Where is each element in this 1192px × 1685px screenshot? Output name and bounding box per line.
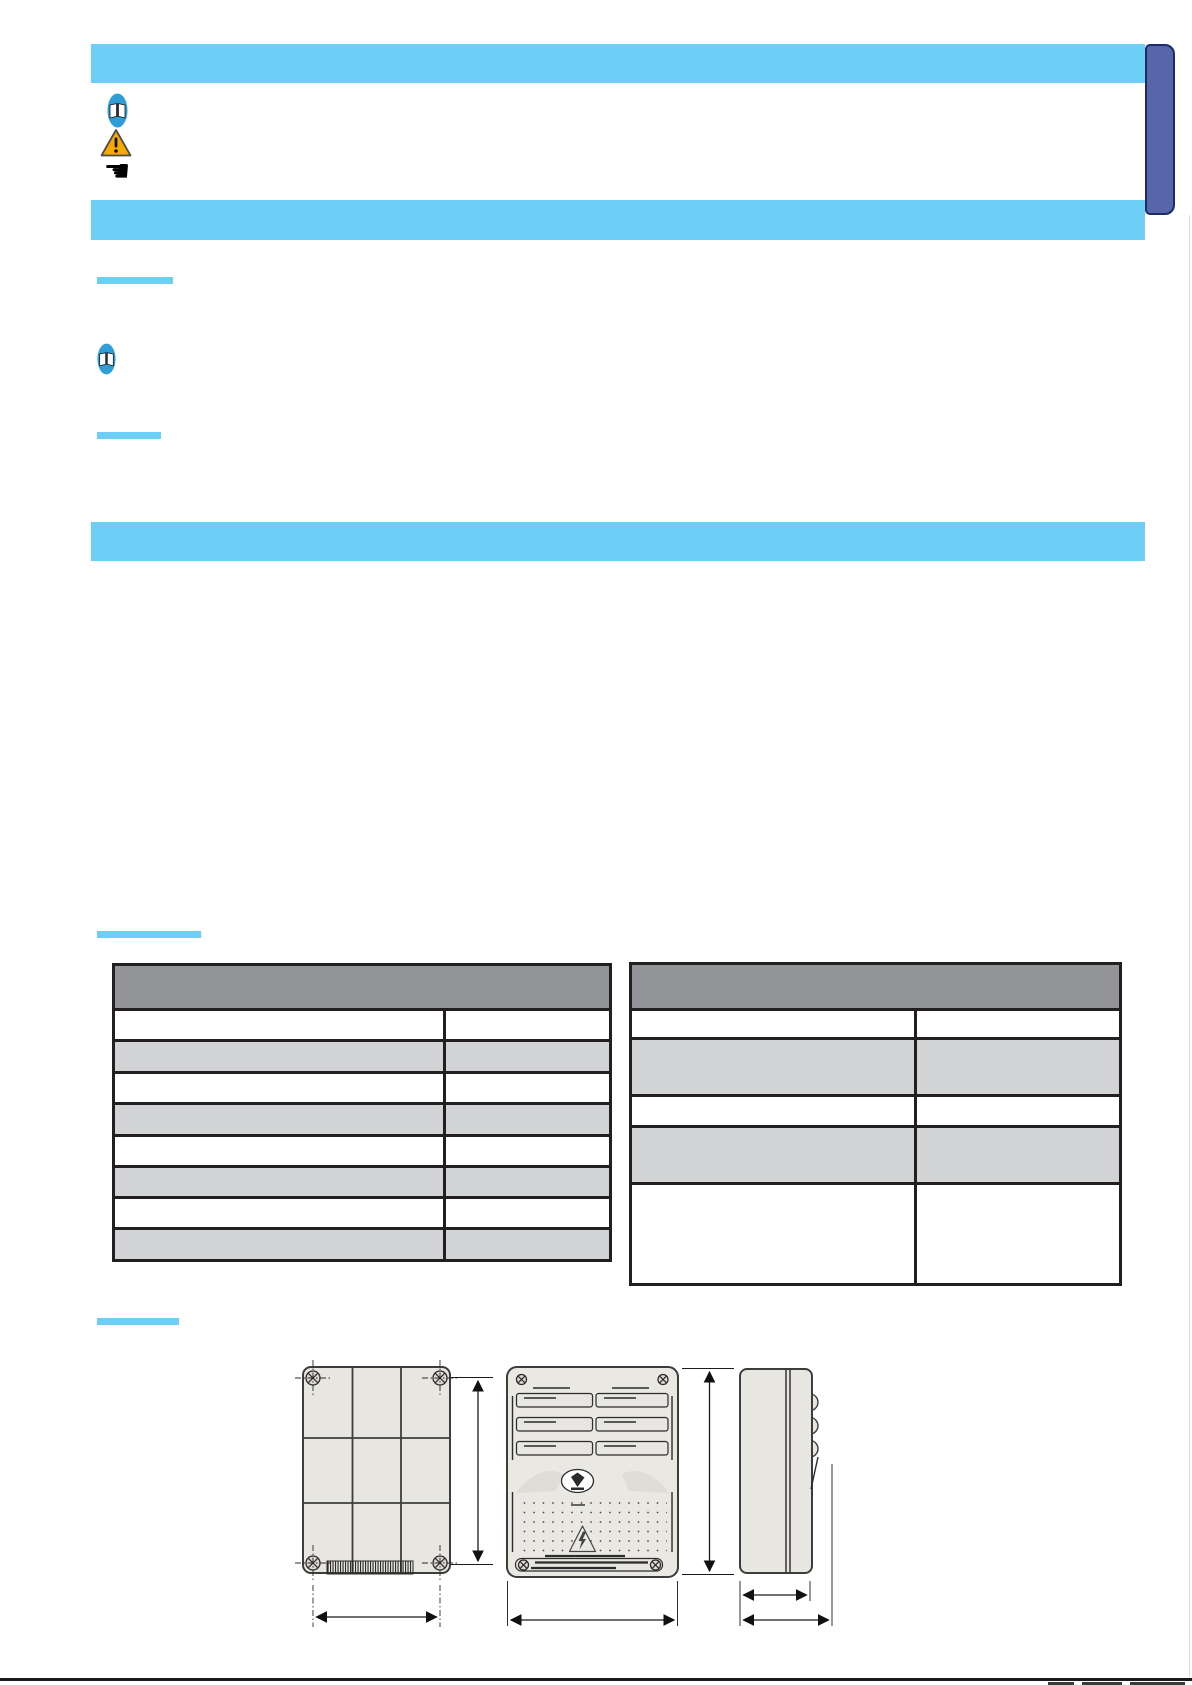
cover-screw-icon — [658, 1375, 668, 1385]
cover-screw-icon — [519, 1560, 529, 1570]
page-edge-line — [1189, 215, 1190, 1677]
table-row — [115, 1071, 609, 1102]
table-cell-parameter — [115, 1199, 446, 1227]
back-view-drawing — [295, 1360, 493, 1627]
table-cell-value — [446, 1199, 609, 1227]
language-side-tab — [1145, 44, 1175, 215]
table-cell-value — [446, 1074, 609, 1102]
technical-data-table-left — [112, 963, 612, 1262]
dimension-drawings — [0, 1340, 1192, 1685]
table-cell-value — [917, 1097, 1119, 1125]
table-header-row — [632, 965, 1119, 1008]
open-book-icon — [107, 93, 128, 133]
table-cell-value — [446, 1042, 609, 1071]
table-row — [632, 1037, 1119, 1094]
table-row — [632, 1125, 1119, 1182]
table-cell-value — [446, 1137, 609, 1165]
table-cell-parameter — [632, 1097, 917, 1125]
table-row — [115, 1227, 609, 1259]
table-cell-value — [917, 1128, 1119, 1182]
table-cell-parameter — [632, 1128, 917, 1182]
table-cell-parameter — [115, 1230, 446, 1259]
table-cell-value — [446, 1011, 609, 1039]
table-cell-value — [446, 1168, 609, 1196]
table-cell-parameter — [115, 1137, 446, 1165]
table-cell-parameter — [115, 1105, 446, 1134]
table-cell-value — [917, 1040, 1119, 1094]
footer-rule — [0, 1678, 1192, 1681]
table-cell-value — [446, 1105, 609, 1134]
heading-underline — [97, 277, 173, 284]
table-cell-value — [917, 1011, 1119, 1037]
vent-ribbed-strip — [327, 1561, 413, 1574]
technical-data-table-right — [629, 962, 1122, 1286]
table-row — [632, 1008, 1119, 1037]
table-row — [115, 1196, 609, 1227]
table-row — [115, 1039, 609, 1071]
side-view-drawing — [740, 1369, 832, 1626]
table-row — [115, 1165, 609, 1196]
table-cell-parameter — [115, 1042, 446, 1071]
table-row — [115, 1008, 609, 1039]
table-cell-value — [917, 1185, 1119, 1283]
bottom-cable-slot — [516, 1556, 663, 1571]
heading-underline — [97, 931, 201, 938]
pointing-hand-icon: ☛ — [100, 156, 134, 188]
section-banner-bar — [91, 200, 1145, 240]
table-cell-parameter — [115, 1074, 446, 1102]
cover-screw-icon — [517, 1375, 527, 1385]
table-cell-parameter — [632, 1185, 917, 1283]
table-header-row — [115, 966, 609, 1008]
table-cell-parameter — [632, 1011, 917, 1037]
cover-screw-icon — [651, 1560, 661, 1570]
heading-underline — [97, 1318, 179, 1325]
manual-page: ☛ — [0, 0, 1192, 1685]
open-book-icon-small — [97, 343, 116, 380]
vent-louvers — [517, 1394, 669, 1456]
table-cell-parameter — [115, 1011, 446, 1039]
table-cell-value — [446, 1230, 609, 1259]
table-cell-parameter — [632, 1040, 917, 1094]
table-row — [632, 1094, 1119, 1125]
table-row — [632, 1182, 1119, 1283]
title-banner-bar — [91, 44, 1145, 83]
section-banner-bar-2 — [91, 522, 1145, 561]
table-row — [115, 1102, 609, 1134]
heading-underline — [97, 432, 161, 439]
table-cell-parameter — [115, 1168, 446, 1196]
front-view-drawing — [507, 1367, 734, 1626]
table-row — [115, 1134, 609, 1165]
